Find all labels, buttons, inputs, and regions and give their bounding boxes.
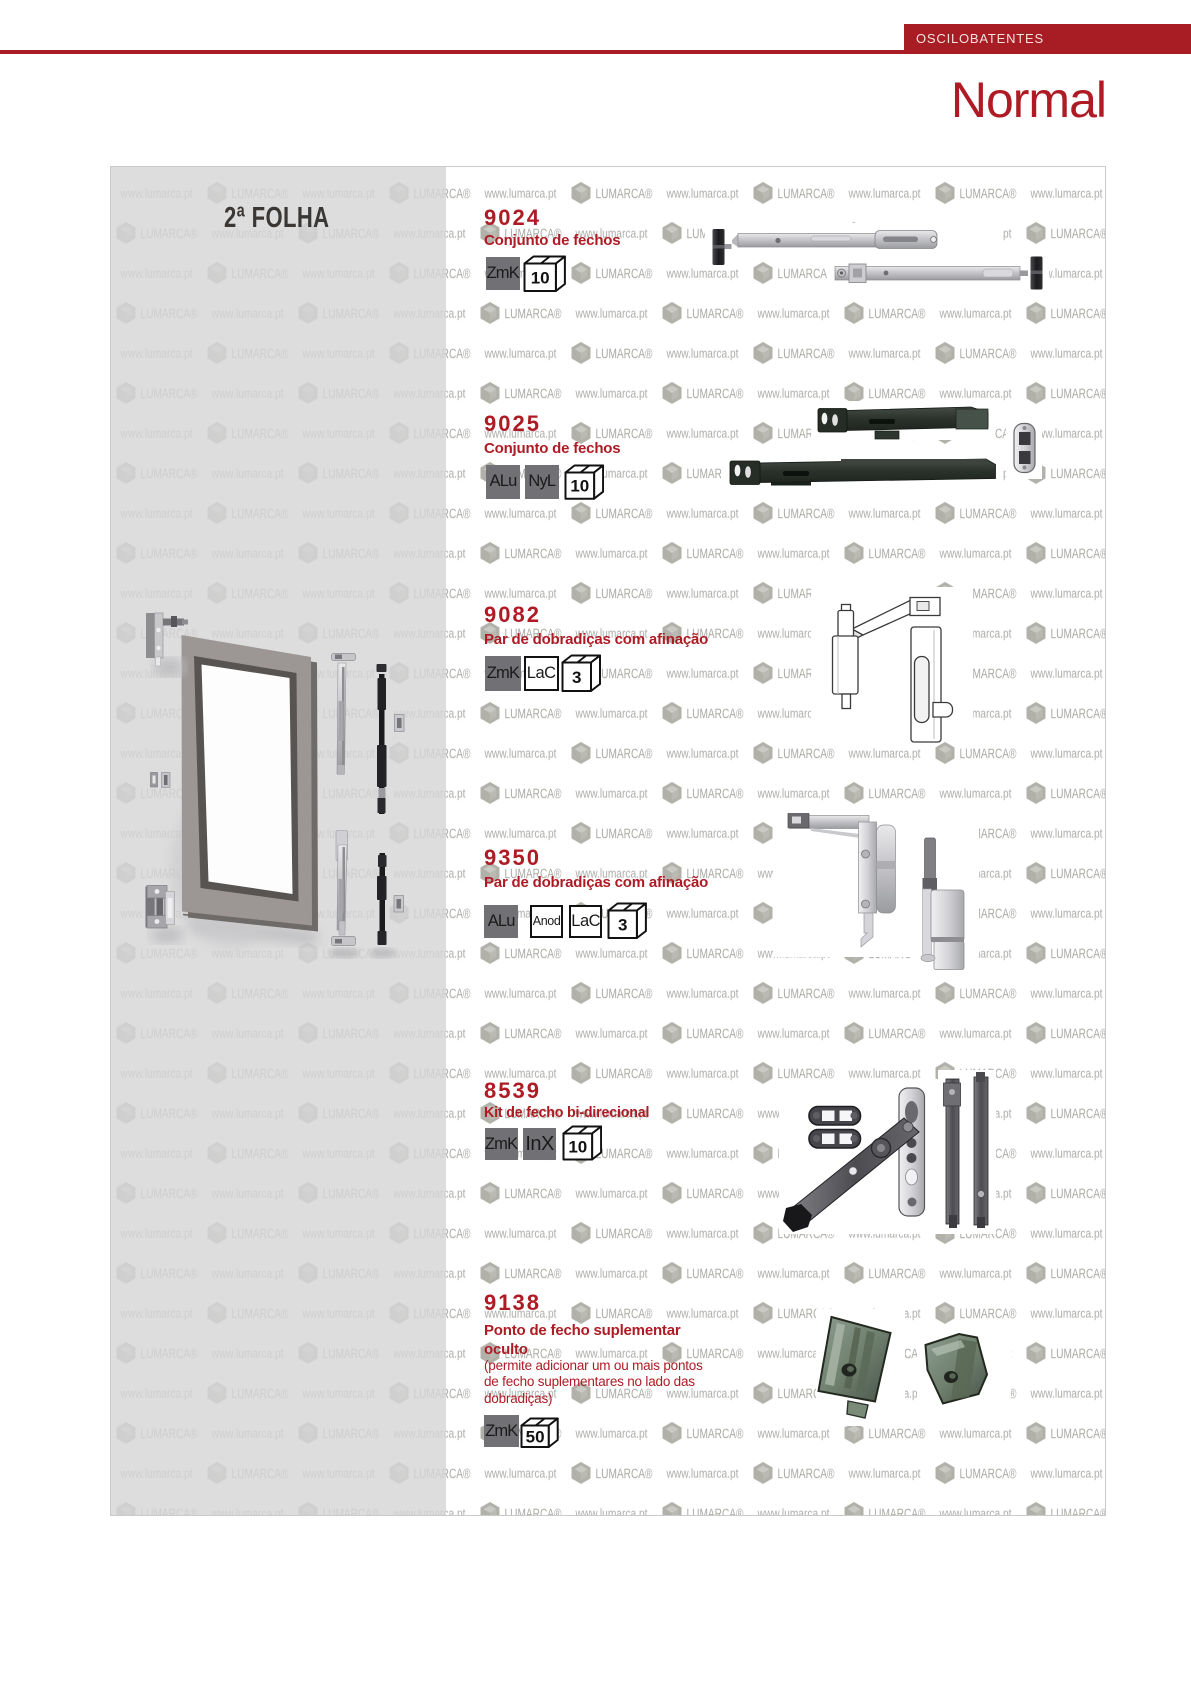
svg-text:50: 50 bbox=[526, 1427, 545, 1446]
svg-text:10: 10 bbox=[570, 477, 589, 496]
svg-text:10: 10 bbox=[568, 1138, 587, 1157]
svg-text:10: 10 bbox=[531, 268, 550, 287]
svg-text:3: 3 bbox=[572, 668, 581, 687]
svg-text:3: 3 bbox=[618, 915, 627, 934]
